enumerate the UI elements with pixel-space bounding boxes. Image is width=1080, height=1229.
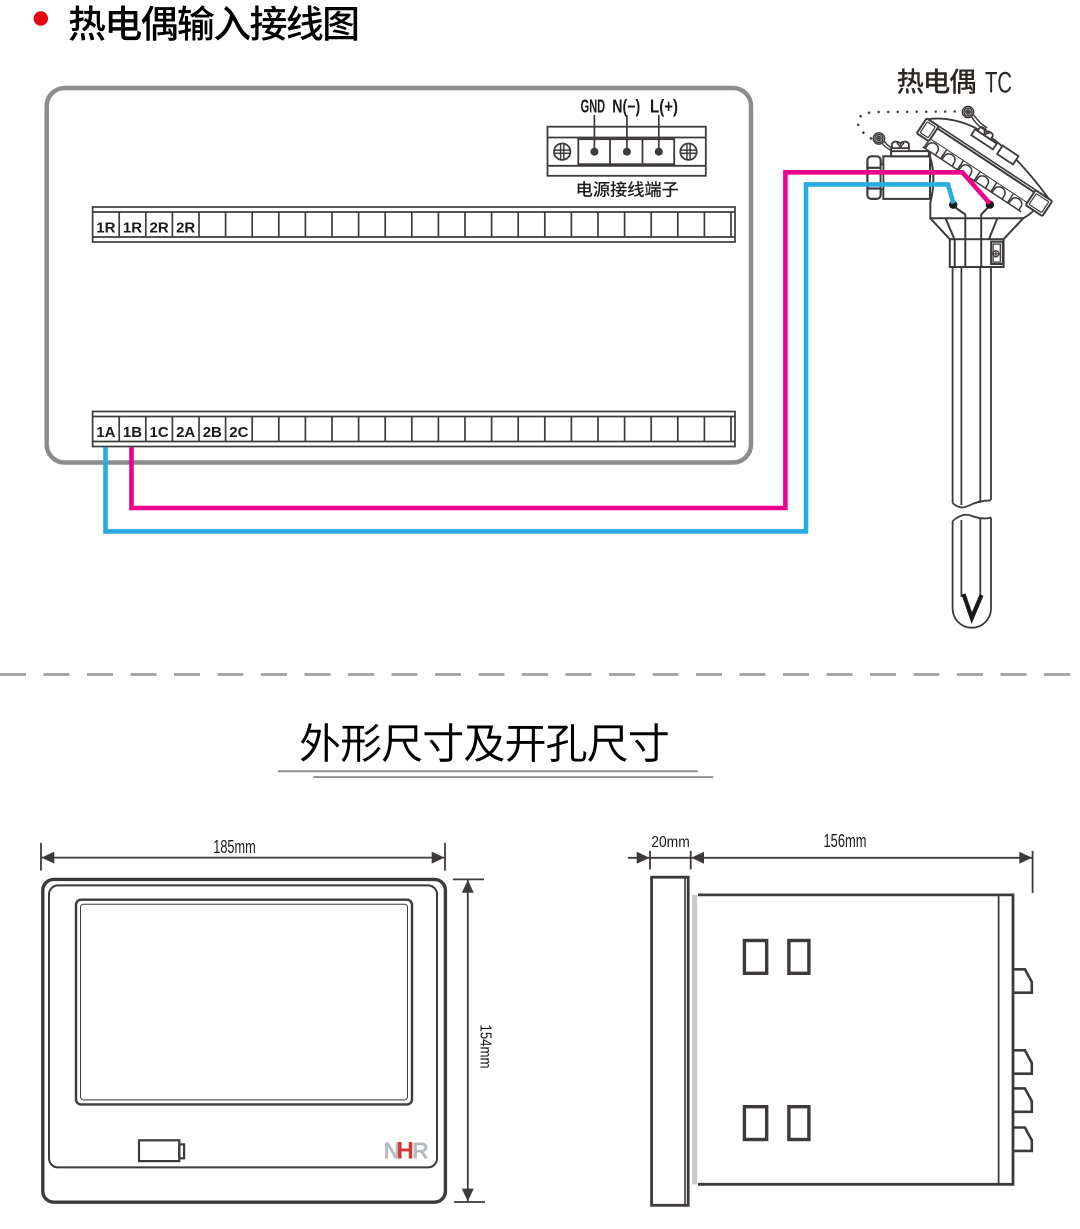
svg-text:N(−): N(−) bbox=[612, 97, 640, 117]
svg-text:H: H bbox=[397, 1138, 414, 1165]
svg-text:1R: 1R bbox=[96, 220, 115, 237]
svg-text:20mm: 20mm bbox=[651, 834, 690, 851]
svg-text:2B: 2B bbox=[203, 424, 222, 441]
svg-text:TC: TC bbox=[985, 67, 1012, 100]
svg-text:156mm: 156mm bbox=[824, 831, 867, 851]
svg-text:185mm: 185mm bbox=[213, 837, 256, 857]
svg-text:2C: 2C bbox=[229, 424, 248, 441]
svg-text:R: R bbox=[412, 1138, 429, 1164]
svg-text:1C: 1C bbox=[150, 424, 169, 441]
svg-text:1R: 1R bbox=[123, 220, 142, 237]
svg-text:154mm: 154mm bbox=[477, 1025, 494, 1069]
svg-text:2R: 2R bbox=[150, 220, 169, 237]
svg-text:2A: 2A bbox=[176, 424, 195, 441]
svg-text:GND: GND bbox=[581, 97, 606, 117]
svg-text:1B: 1B bbox=[123, 424, 142, 441]
svg-text:2R: 2R bbox=[176, 220, 195, 237]
svg-text:1A: 1A bbox=[96, 424, 115, 441]
svg-text:L(+): L(+) bbox=[650, 97, 678, 117]
